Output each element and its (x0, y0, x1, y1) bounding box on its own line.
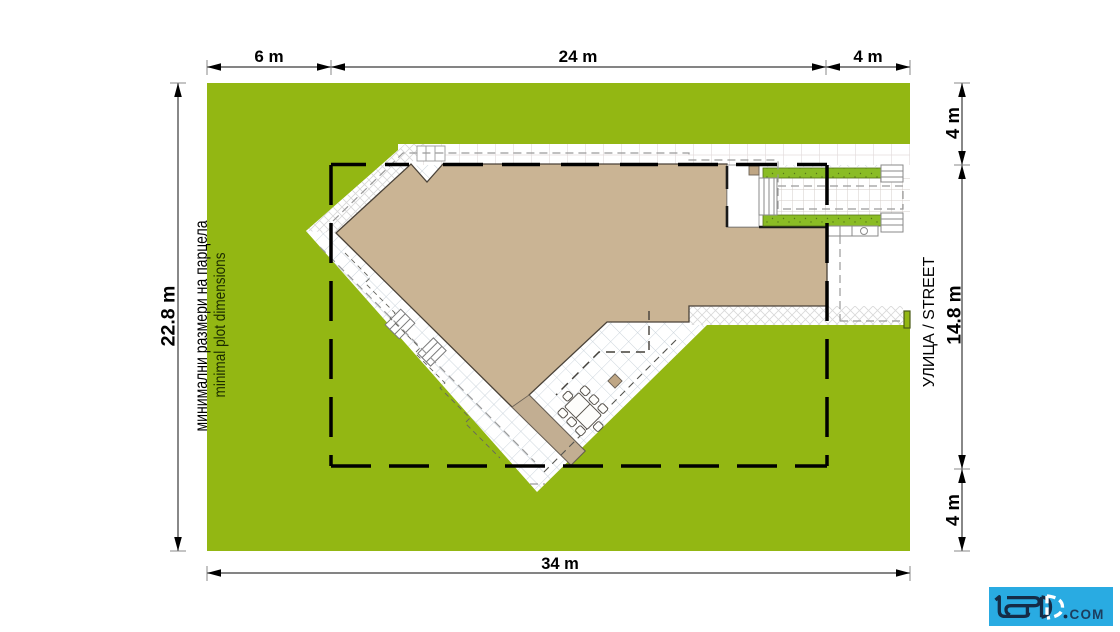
svg-text:minimal plot dimensions: minimal plot dimensions (212, 252, 229, 397)
svg-text:4 m: 4 m (942, 494, 963, 526)
svg-text:УЛИЦА / STREET: УЛИЦА / STREET (921, 256, 938, 387)
svg-text:14.8 m: 14.8 m (945, 285, 966, 344)
svg-text:34 m: 34 m (541, 555, 579, 573)
svg-text:4 m: 4 m (853, 47, 882, 66)
svg-text:4 m: 4 m (942, 107, 963, 139)
svg-text:22.8 m: 22.8 m (158, 286, 180, 347)
svg-text:COM: COM (1070, 607, 1105, 622)
svg-text:6 m: 6 m (254, 47, 283, 66)
svg-text:минимални размери на парцела: минимални размери на парцела (191, 220, 211, 431)
svg-text:24 m: 24 m (559, 47, 598, 66)
